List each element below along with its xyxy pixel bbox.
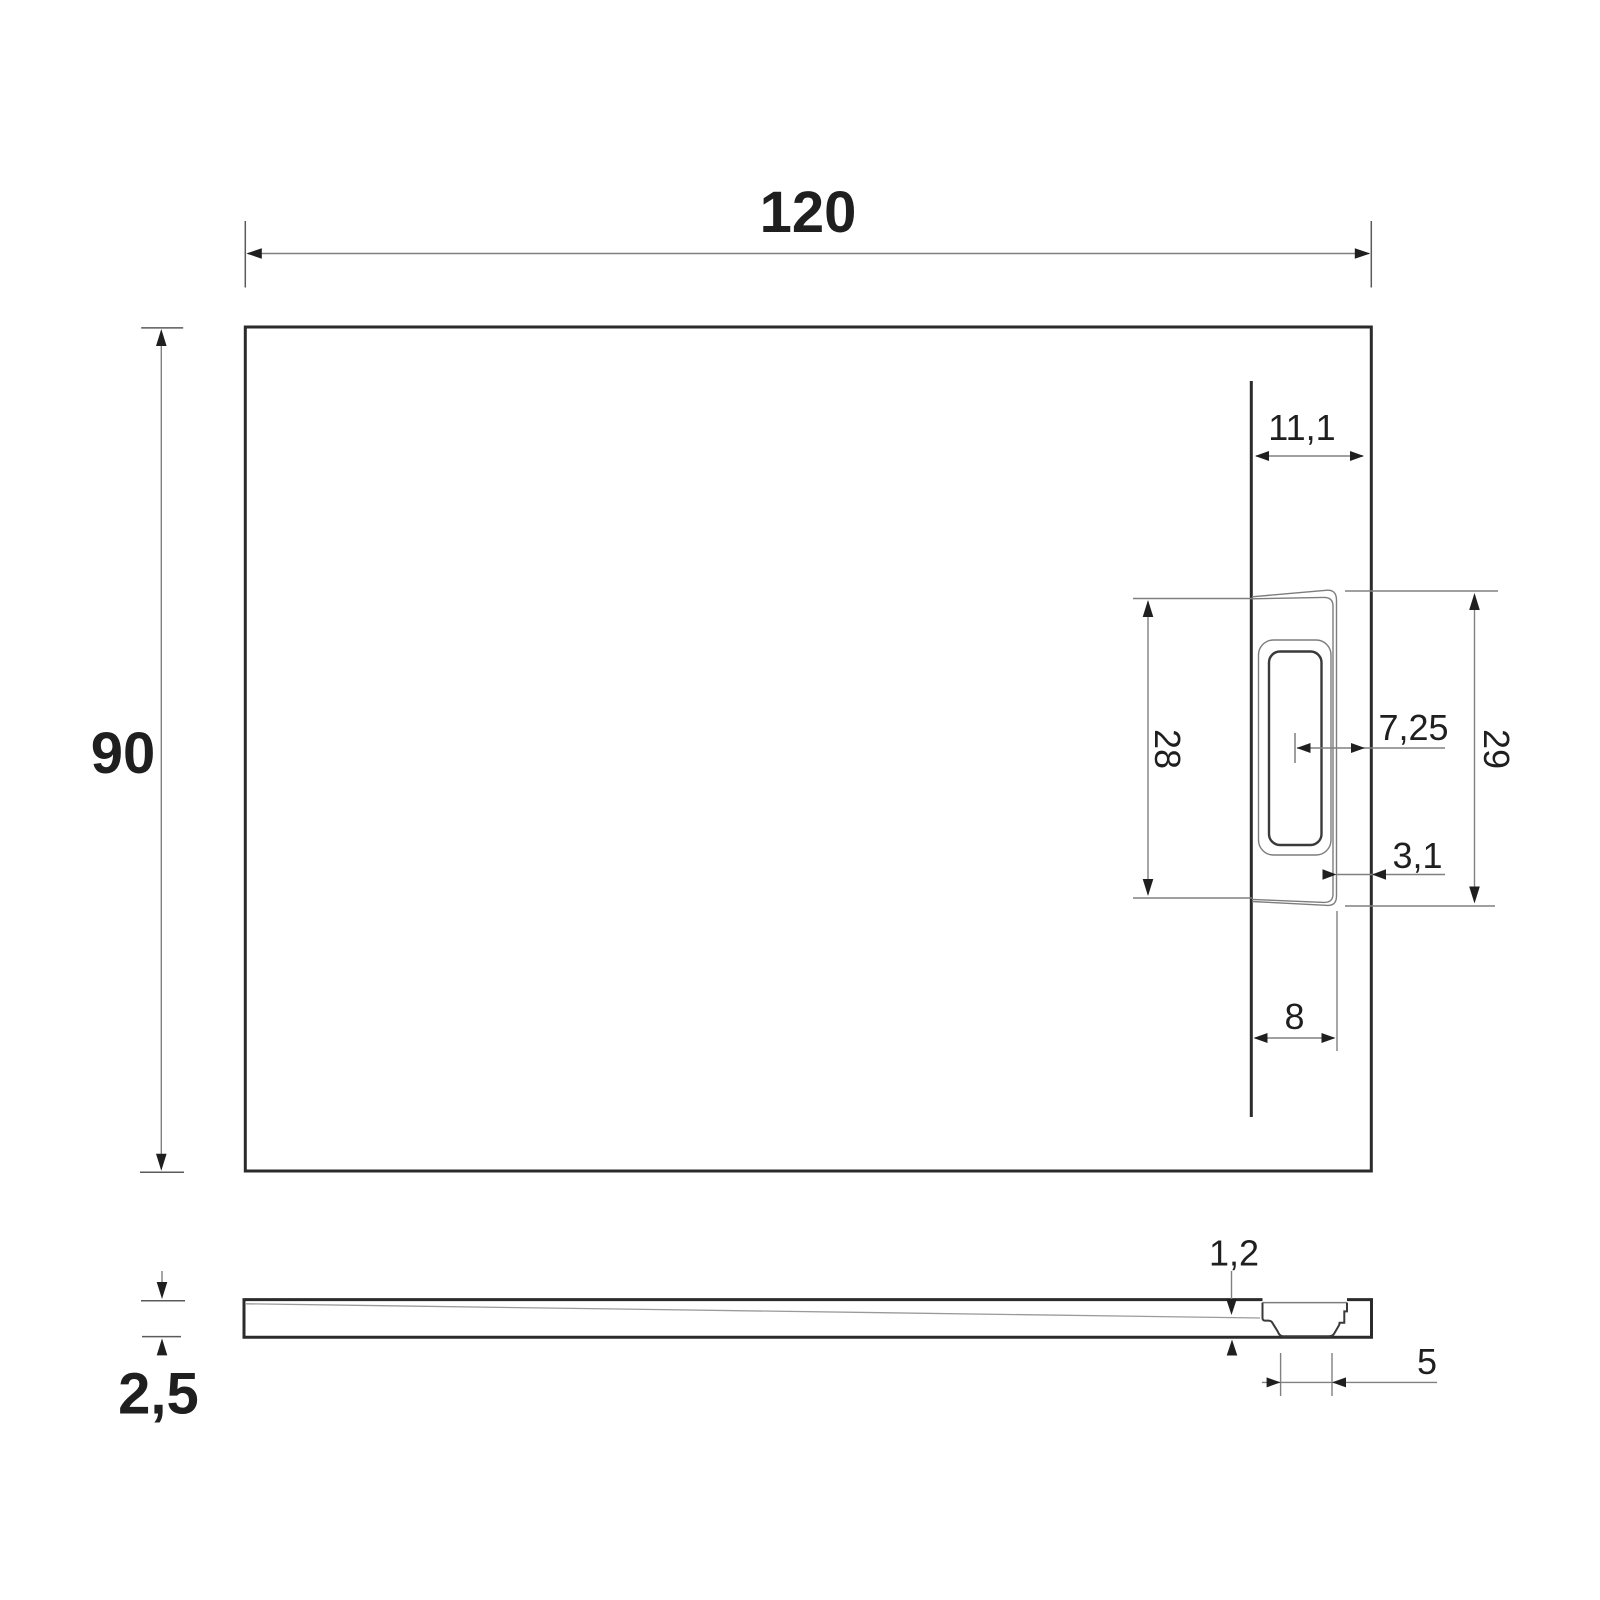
svg-text:7,25: 7,25 bbox=[1378, 707, 1448, 748]
svg-text:5: 5 bbox=[1417, 1341, 1437, 1382]
svg-text:1,2: 1,2 bbox=[1209, 1233, 1259, 1274]
svg-text:8: 8 bbox=[1284, 996, 1304, 1037]
svg-text:29: 29 bbox=[1476, 729, 1517, 769]
svg-text:2,5: 2,5 bbox=[118, 1362, 199, 1427]
svg-text:3,1: 3,1 bbox=[1392, 835, 1442, 876]
svg-text:90: 90 bbox=[91, 721, 156, 786]
svg-text:28: 28 bbox=[1147, 729, 1188, 769]
svg-text:11,1: 11,1 bbox=[1268, 407, 1335, 448]
svg-text:120: 120 bbox=[760, 180, 857, 245]
